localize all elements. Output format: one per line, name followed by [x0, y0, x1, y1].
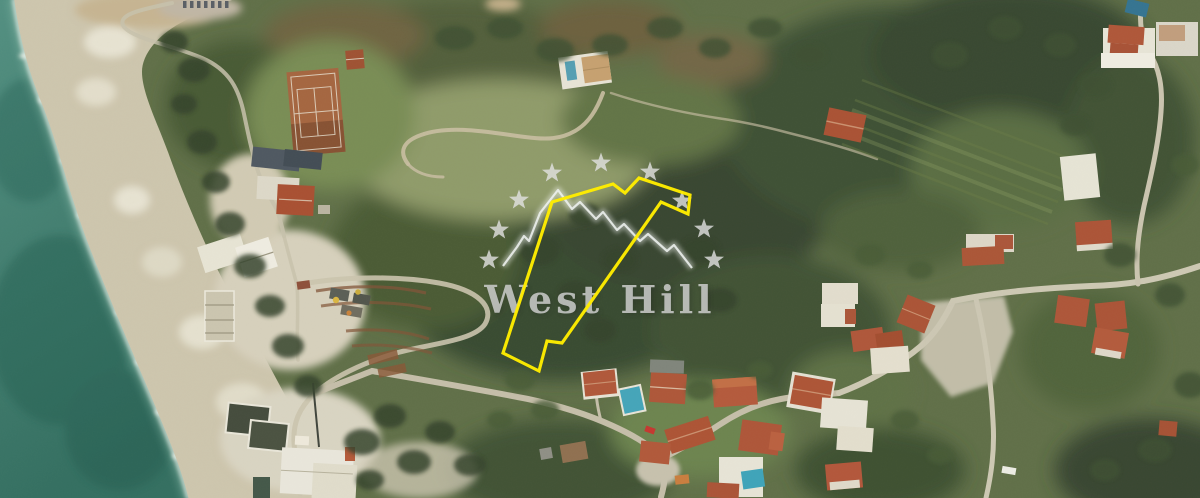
aerial-map: West Hill West Hill — [0, 0, 1200, 498]
brand-text: West Hill — [483, 277, 715, 322]
grain-overlay — [0, 0, 1200, 498]
map-canvas: West Hill West Hill — [0, 0, 1200, 498]
